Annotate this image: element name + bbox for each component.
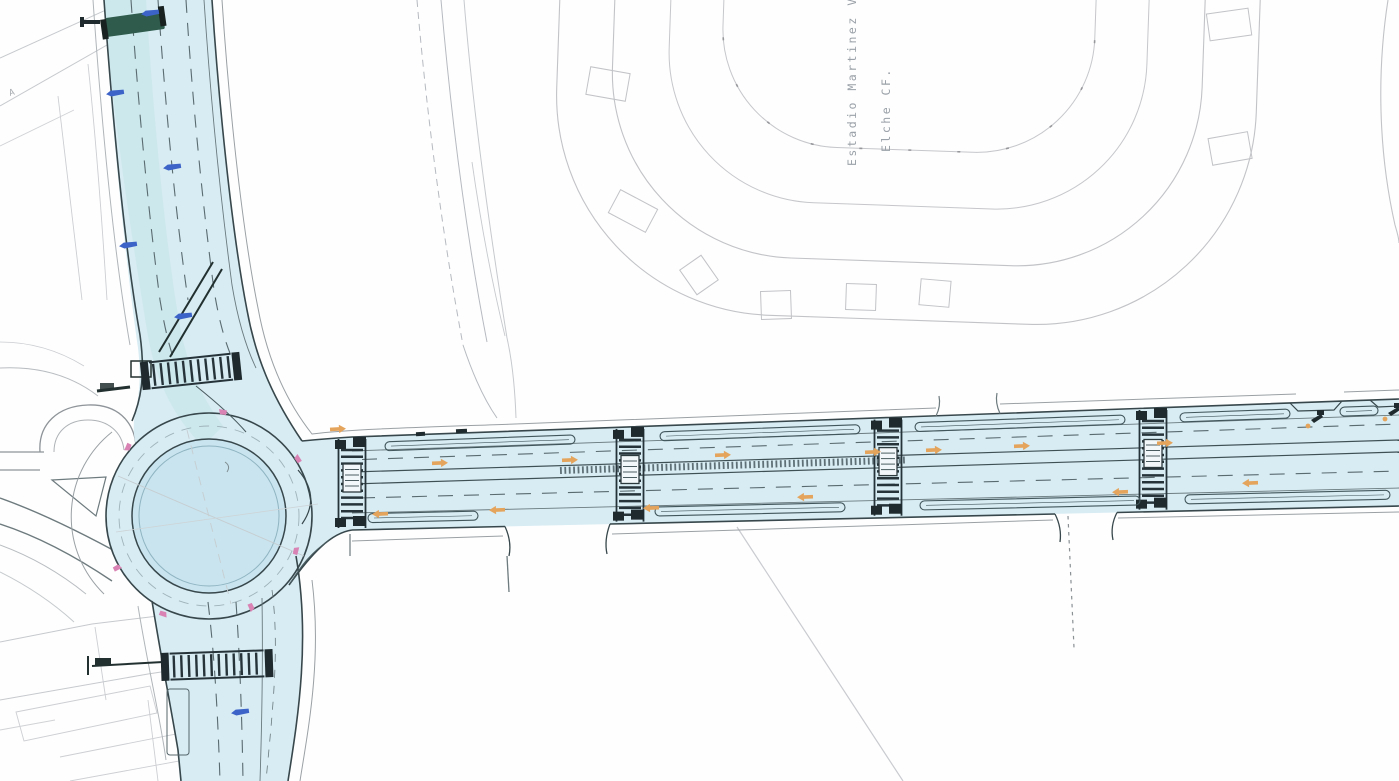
crossing-end-block <box>353 437 366 447</box>
crossing-end-block <box>1154 408 1167 418</box>
crossing-end-block <box>631 510 644 520</box>
stadium-parking-stubs <box>586 8 1252 319</box>
stadium-label-line2: Elche CF. <box>879 67 893 152</box>
lane-markings <box>116 0 1399 781</box>
crossing-end-block <box>871 421 882 430</box>
crossing-end-block <box>335 518 346 527</box>
stadium-outline <box>549 0 1399 332</box>
crossing-end-block <box>335 440 346 449</box>
plan-canvas: Estadio Martinez V Elche CF. A <box>0 0 1399 781</box>
crossing-end-block <box>613 512 624 521</box>
crossing-end-block <box>889 504 902 514</box>
crossing-end-block <box>613 430 624 439</box>
sidewalk-lines <box>138 0 1399 781</box>
stadium-label-line1: Estadio Martinez V <box>845 0 859 166</box>
crossing-end-block <box>889 418 902 428</box>
median-refuge <box>879 448 897 476</box>
median-refuge <box>621 455 639 483</box>
crossing-end-block <box>871 506 882 515</box>
crossing-end-block <box>631 427 644 437</box>
signal-pole-icon <box>84 20 100 24</box>
crossing-end-block <box>1154 498 1167 508</box>
crossing-end-block <box>1136 411 1147 420</box>
median-refuge <box>343 464 361 492</box>
crossing-end-block <box>353 516 366 526</box>
corner-street-label: A <box>8 87 19 99</box>
road-network <box>104 0 1399 781</box>
